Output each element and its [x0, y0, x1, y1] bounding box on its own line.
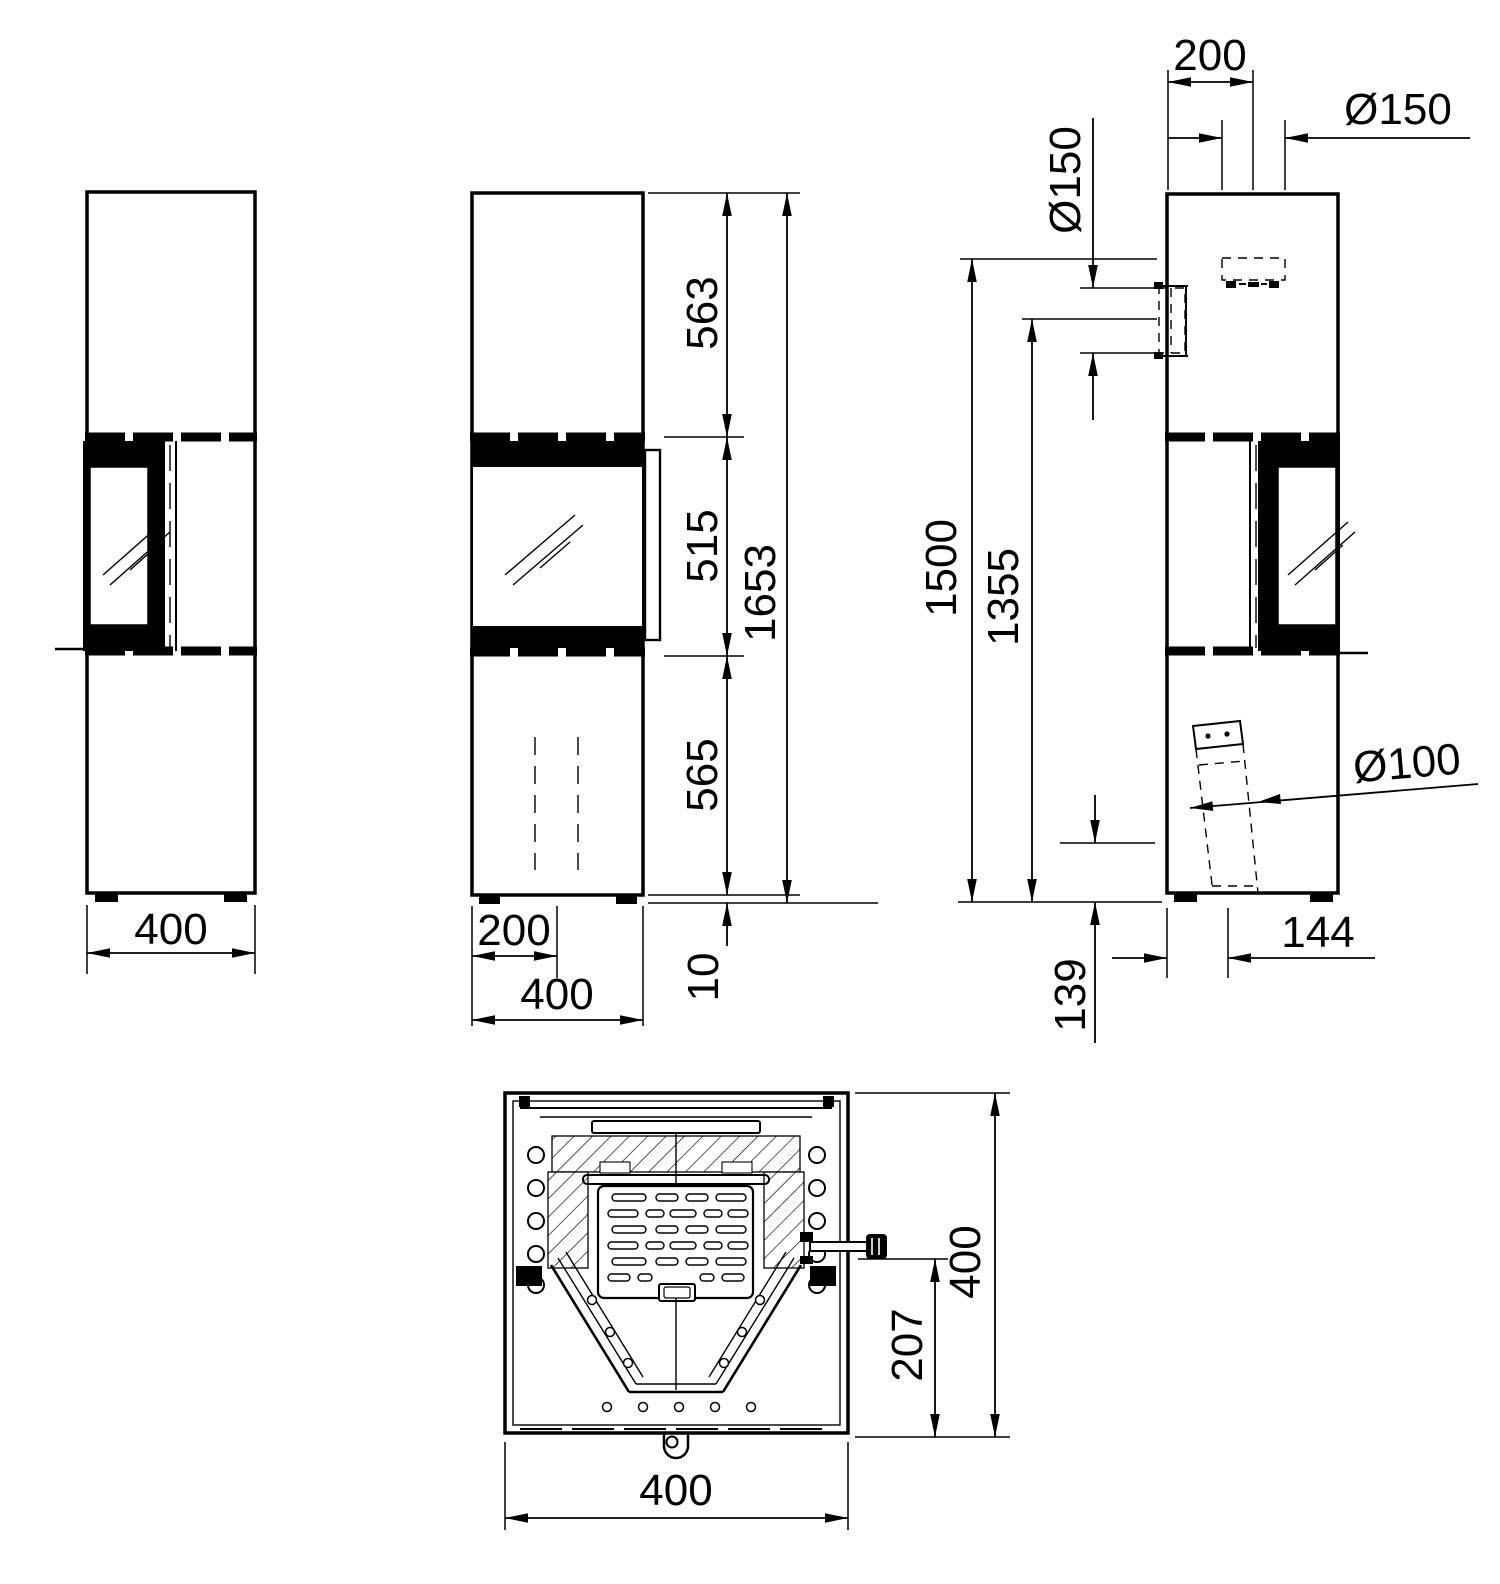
- dim-rear-flue-top-height: 1500: [917, 519, 966, 617]
- right-side-view: 200 Ø150 Ø150 1500 1355 Ø100: [917, 31, 1478, 1043]
- dim-plinth-height: 10: [679, 953, 728, 1002]
- dim-rear-flue-diameter: Ø150: [1041, 126, 1090, 234]
- dim-air-duct-diameter: Ø100: [1351, 735, 1462, 793]
- dim-center-offset: 200: [477, 906, 550, 955]
- dim-front-width: 400: [520, 970, 593, 1019]
- dim-upper-height: 563: [678, 276, 727, 349]
- front-view-foot-right: [616, 895, 637, 904]
- front-view-door-top-frame: [472, 441, 643, 466]
- right-view-top-dims: 200 Ø150: [1168, 31, 1470, 190]
- right-view-foot-right: [1310, 893, 1333, 902]
- dim-lower-height: 565: [678, 738, 727, 811]
- front-view-height-dims: 563 515 565 1653 10: [678, 193, 787, 1001]
- front-view-door-handle: [645, 450, 660, 640]
- dim-flue-center-offset: 200: [1173, 31, 1246, 80]
- section-view: 400 207 400: [505, 1093, 1010, 1530]
- right-view-foot-left: [1174, 893, 1197, 902]
- dim-rear-flue-center-height: 1355: [979, 548, 1028, 646]
- dim-air-duct-height: 139: [1046, 958, 1095, 1031]
- drawing-sheet: 400: [0, 0, 1500, 1584]
- left-view-foot-left: [95, 893, 118, 902]
- dim-top-flue-diameter: Ø150: [1344, 85, 1452, 134]
- dim-handle-offset: 207: [883, 1308, 932, 1381]
- stove-dimension-drawing: 400: [0, 0, 1500, 1584]
- left-view-glass: [90, 467, 148, 625]
- front-view-door-bottom-frame: [472, 627, 643, 648]
- front-view-foot-left: [479, 895, 500, 904]
- right-view-glass: [1278, 467, 1336, 625]
- dim-section-width: 400: [639, 1466, 712, 1515]
- front-view: 563 515 565 1653 10 200 400: [470, 193, 878, 1026]
- dim-total-height: 1653: [736, 544, 785, 642]
- dim-door-height: 515: [678, 509, 727, 582]
- left-view-foot-right: [224, 893, 247, 902]
- left-side-view: 400: [55, 192, 257, 974]
- dim-left-width: 400: [134, 905, 207, 954]
- right-view-rear-flue-dims: Ø150 1500 1355: [917, 118, 1162, 902]
- dim-air-duct-offset: 144: [1281, 908, 1354, 957]
- section-bottom-latch: [664, 1433, 688, 1458]
- dim-section-depth: 400: [941, 1225, 990, 1298]
- left-view-width-dim: 400: [87, 905, 255, 974]
